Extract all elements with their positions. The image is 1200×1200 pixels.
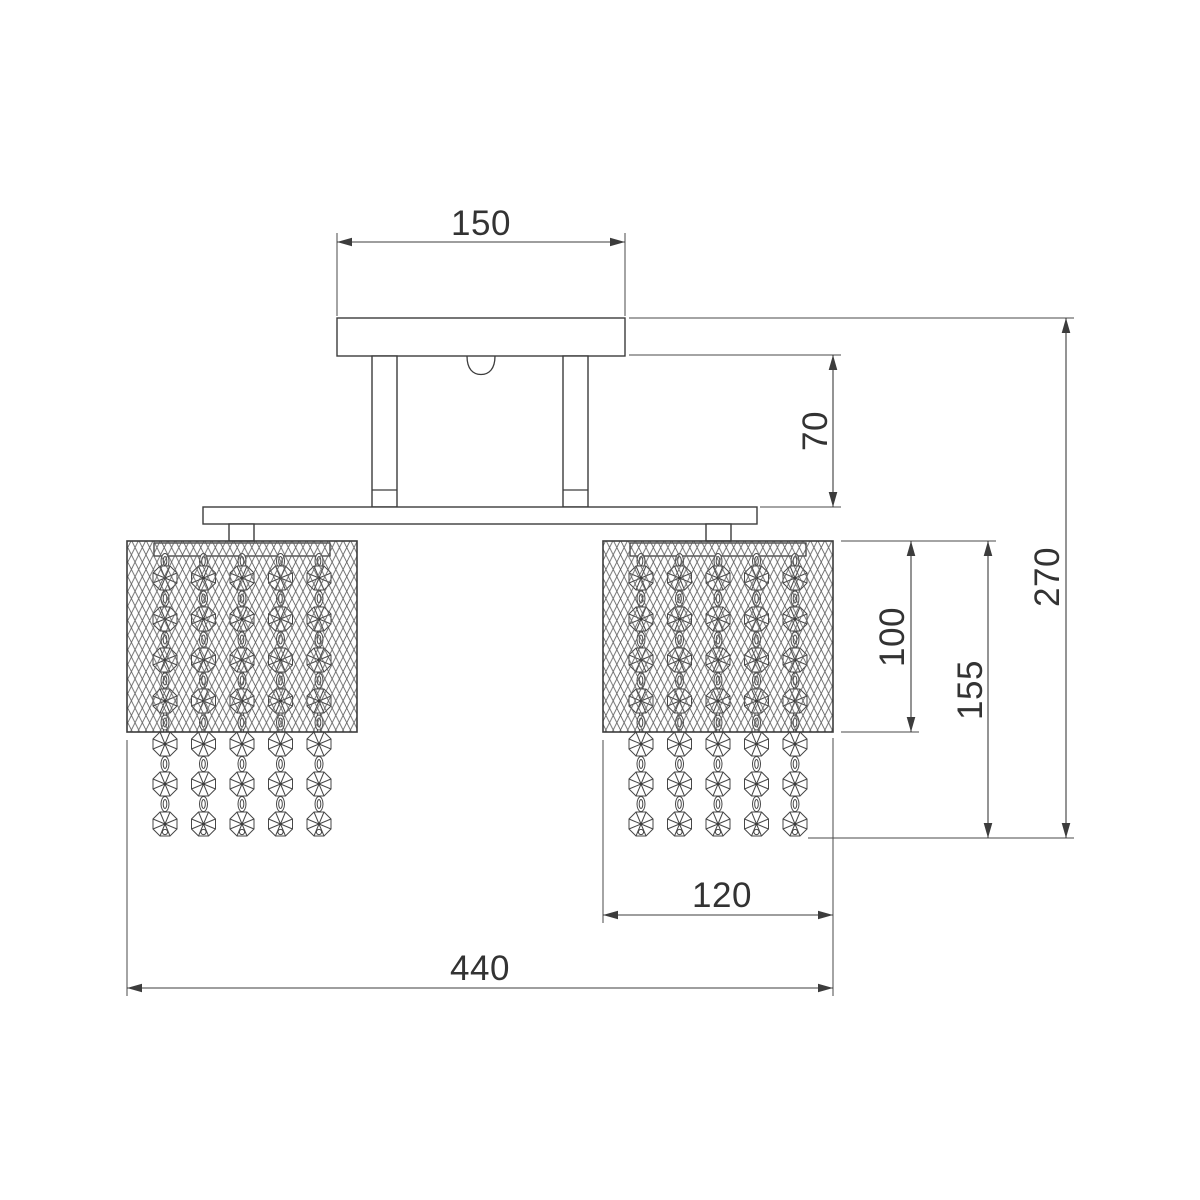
technical-drawing-canvas: 150 70 270 100 155 <box>0 0 1200 1200</box>
dim-shade-with-crystals-height: 155 <box>951 541 992 838</box>
dim-label-100: 100 <box>873 607 912 667</box>
cross-arm <box>203 507 757 524</box>
mesh-shade-body <box>127 541 357 732</box>
shade-connector-left <box>229 524 254 541</box>
mesh-shade-body <box>603 541 833 732</box>
dim-label-70: 70 <box>796 411 835 451</box>
dim-label-440: 440 <box>450 949 510 988</box>
dim-canopy-width: 150 <box>337 204 625 316</box>
shade-connector-right <box>706 524 731 541</box>
dim-label-270: 270 <box>1028 547 1067 607</box>
ceiling-canopy-plate <box>337 318 625 356</box>
dim-label-120: 120 <box>692 876 752 915</box>
mount-stem-right <box>563 356 588 507</box>
mount-stem-left <box>372 356 397 507</box>
drawing-page: 150 70 270 100 155 <box>0 0 1200 1200</box>
dim-stem-drop: 70 <box>629 355 841 507</box>
dim-label-150: 150 <box>451 204 511 243</box>
screw-detail <box>467 356 495 375</box>
dim-label-155: 155 <box>951 660 990 720</box>
lampshade-right <box>603 541 833 836</box>
lampshade-left <box>127 541 357 836</box>
